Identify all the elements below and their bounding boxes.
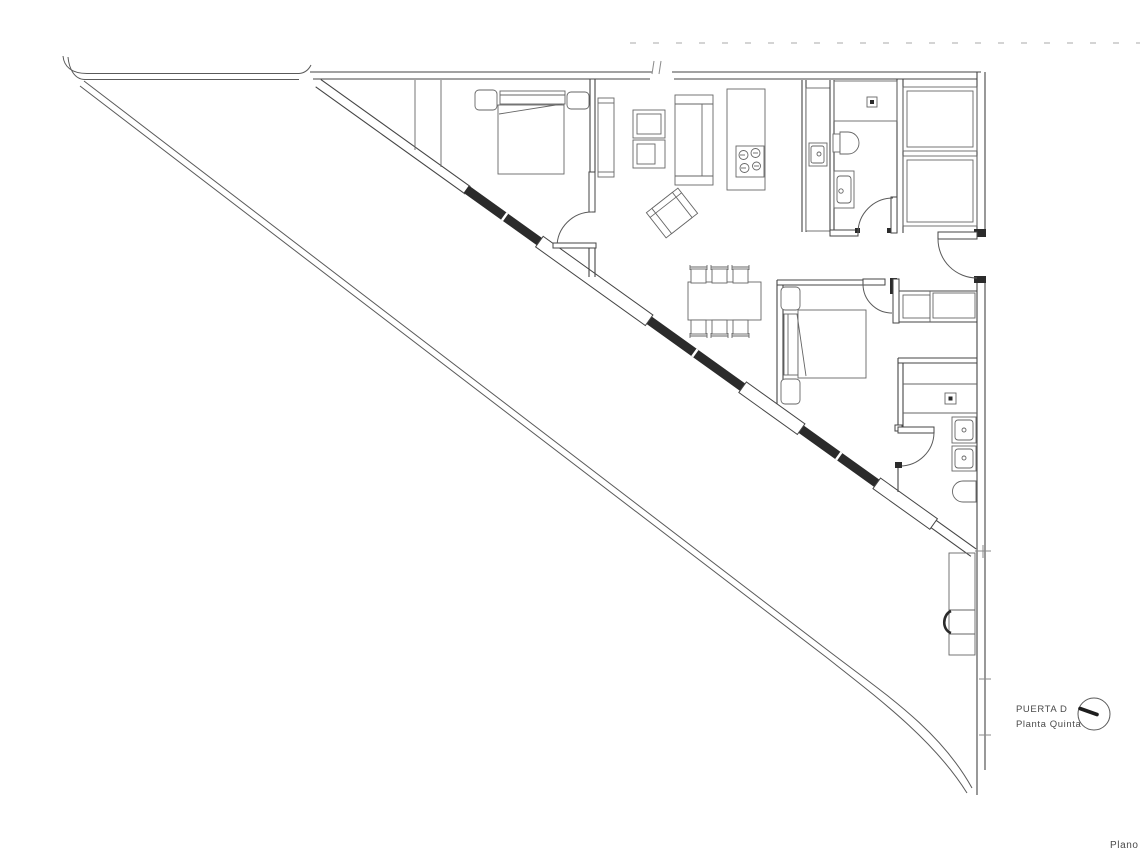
door-leaf [898,427,934,433]
floor-plan-drawing: PUERTA D Planta Quinta Plano [0,0,1140,860]
kitchen-island [727,89,765,190]
door-swing [900,433,934,466]
service-shafts [903,87,977,226]
plan-annotation: PUERTA D Planta Quinta Plano [1016,698,1139,851]
door-leaf [863,279,885,285]
laundry-closet [893,279,977,323]
washbasin-2b [952,446,976,471]
dining-table [688,282,761,320]
door-leaf [589,172,595,212]
sofa [675,95,713,185]
entry-door [938,232,977,278]
floor-label: Planta Quinta [1016,719,1081,730]
facade-pier [873,478,937,529]
toilet-1 [833,132,859,154]
top-wall [310,61,981,79]
wall-break-symbol [659,61,661,74]
bathroom-2 [895,358,977,502]
tv-unit [633,110,665,168]
corner-sheet-label: Plano [1110,840,1139,851]
kitchen-sink [809,143,827,166]
kitchen-counter [806,88,830,231]
door-swing [858,198,893,233]
washbasin-1 [834,171,854,208]
door-jamb [855,228,860,233]
door-leaf [891,197,897,233]
living-room [598,95,713,238]
armchair [646,188,697,238]
door-jamb [895,462,902,468]
shower-1 [834,81,897,121]
floor-plan-page: PUERTA D Planta Quinta Plano [0,0,1140,860]
nightstand [781,379,800,404]
bedroom-2 [777,278,897,404]
orientation-dial-icon [1078,698,1110,730]
washbasin-2a [952,417,976,443]
hatch-mark [944,611,951,633]
cooktop [736,146,764,177]
bedroom-2-bed [781,287,866,404]
nightstand [475,90,497,110]
bathroom-1 [830,79,903,236]
door-jamb [974,276,986,283]
facade-pier [536,236,653,325]
wardrobe [598,98,614,177]
door-swing [863,284,892,313]
nightstand [781,287,800,310]
bedroom-1-bed [475,90,589,174]
shower-2 [903,393,977,413]
wall-break-symbol [652,61,654,74]
terrace-unit [944,553,975,655]
kitchen [727,80,830,232]
door-label: PUERTA D [1016,704,1067,715]
dining-set [688,265,761,338]
nightstand [567,92,589,109]
toilet-2 [953,481,977,502]
right-wall [974,72,991,795]
